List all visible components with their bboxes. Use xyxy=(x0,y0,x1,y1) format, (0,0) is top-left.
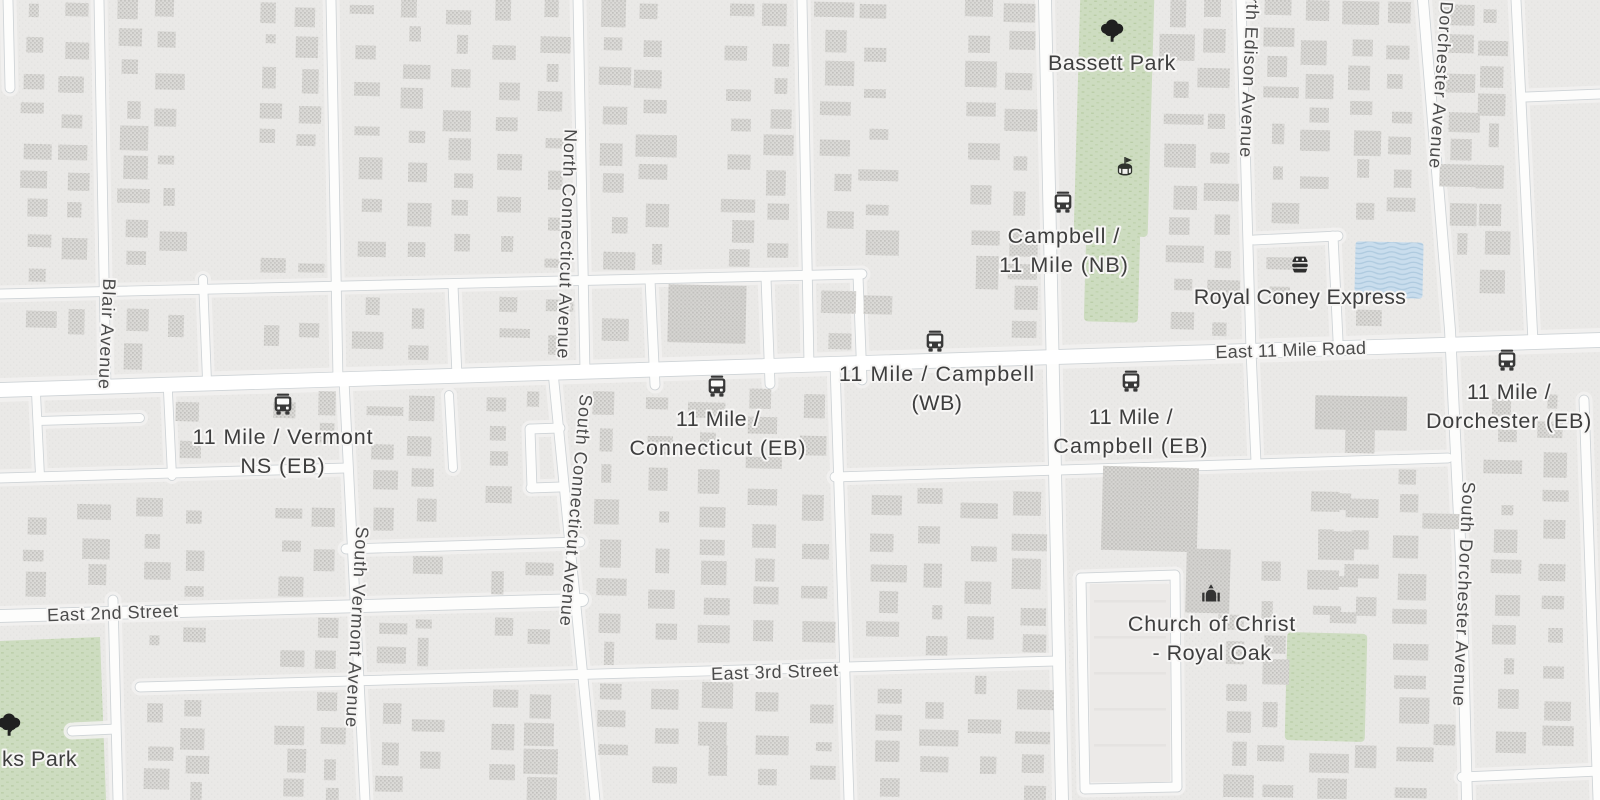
svg-text:Campbell (EB): Campbell (EB) xyxy=(1053,434,1208,458)
svg-text:ks Park: ks Park xyxy=(2,747,77,771)
svg-text:(WB): (WB) xyxy=(912,391,963,415)
svg-text:11 Mile /: 11 Mile / xyxy=(1467,380,1551,404)
svg-text:Royal Coney Express: Royal Coney Express xyxy=(1194,285,1406,309)
svg-text:11 Mile /: 11 Mile / xyxy=(676,407,760,431)
svg-text:Bassett Park: Bassett Park xyxy=(1048,51,1176,75)
svg-text:Church of Christ: Church of Christ xyxy=(1128,612,1296,636)
svg-text:11 Mile / Campbell: 11 Mile / Campbell xyxy=(839,362,1035,386)
svg-text:Dorchester (EB): Dorchester (EB) xyxy=(1426,409,1592,433)
svg-text:Campbell /: Campbell / xyxy=(1008,224,1121,248)
svg-text:NS (EB): NS (EB) xyxy=(240,454,325,478)
svg-text:Connecticut (EB): Connecticut (EB) xyxy=(630,436,807,460)
svg-text:East 3rd Street: East 3rd Street xyxy=(711,660,839,684)
svg-text:11 Mile /: 11 Mile / xyxy=(1089,405,1173,429)
svg-text:- Royal Oak: - Royal Oak xyxy=(1152,641,1271,665)
svg-text:11 Mile / Vermont: 11 Mile / Vermont xyxy=(192,425,373,449)
svg-text:11 Mile (NB): 11 Mile (NB) xyxy=(999,253,1129,277)
